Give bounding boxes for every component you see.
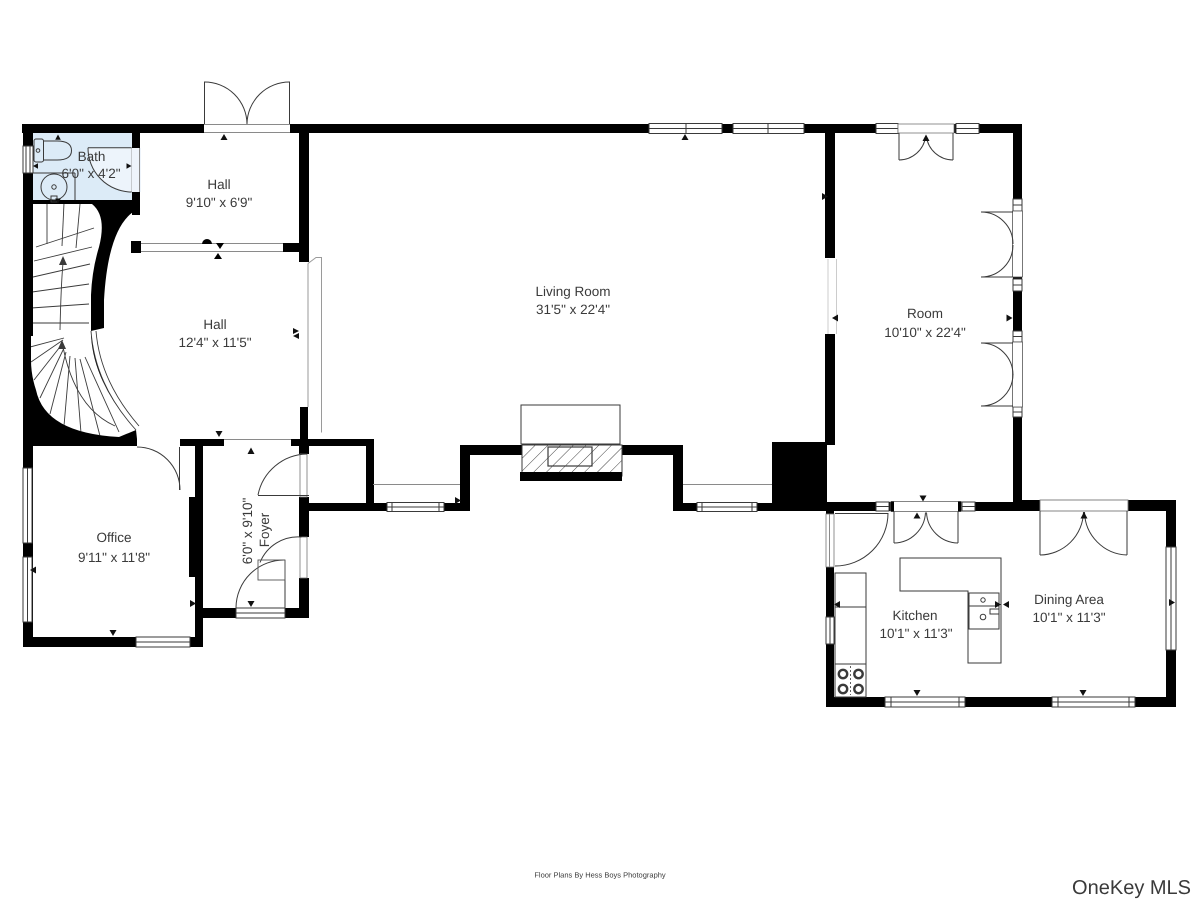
svg-text:Hall: Hall bbox=[203, 317, 226, 332]
svg-text:10'10" x 22'4": 10'10" x 22'4" bbox=[884, 325, 966, 340]
svg-text:Dining Area: Dining Area bbox=[1034, 592, 1104, 607]
svg-text:6'0" x 4'2": 6'0" x 4'2" bbox=[61, 166, 120, 181]
svg-text:Living Room: Living Room bbox=[535, 284, 610, 299]
svg-text:Room: Room bbox=[907, 306, 943, 321]
svg-text:Office: Office bbox=[96, 530, 131, 545]
svg-text:Bath: Bath bbox=[78, 149, 106, 164]
svg-text:Foyer: Foyer bbox=[257, 512, 272, 547]
svg-text:10'1" x 11'3": 10'1" x 11'3" bbox=[1032, 610, 1105, 625]
svg-text:Floor Plans By Hess Boys Photo: Floor Plans By Hess Boys Photography bbox=[534, 871, 666, 880]
svg-text:10'1" x 11'3": 10'1" x 11'3" bbox=[879, 626, 952, 641]
svg-text:12'4" x 11'5": 12'4" x 11'5" bbox=[178, 335, 251, 350]
svg-text:9'11" x 11'8": 9'11" x 11'8" bbox=[78, 550, 150, 565]
svg-text:Kitchen: Kitchen bbox=[892, 608, 937, 623]
svg-text:31'5" x 22'4": 31'5" x 22'4" bbox=[536, 302, 610, 317]
svg-text:9'10" x 6'9": 9'10" x 6'9" bbox=[186, 195, 253, 210]
svg-text:Hall: Hall bbox=[207, 177, 230, 192]
svg-text:OneKey MLS: OneKey MLS bbox=[1072, 877, 1191, 899]
svg-text:6'0" x 9'10": 6'0" x 9'10" bbox=[240, 498, 255, 565]
